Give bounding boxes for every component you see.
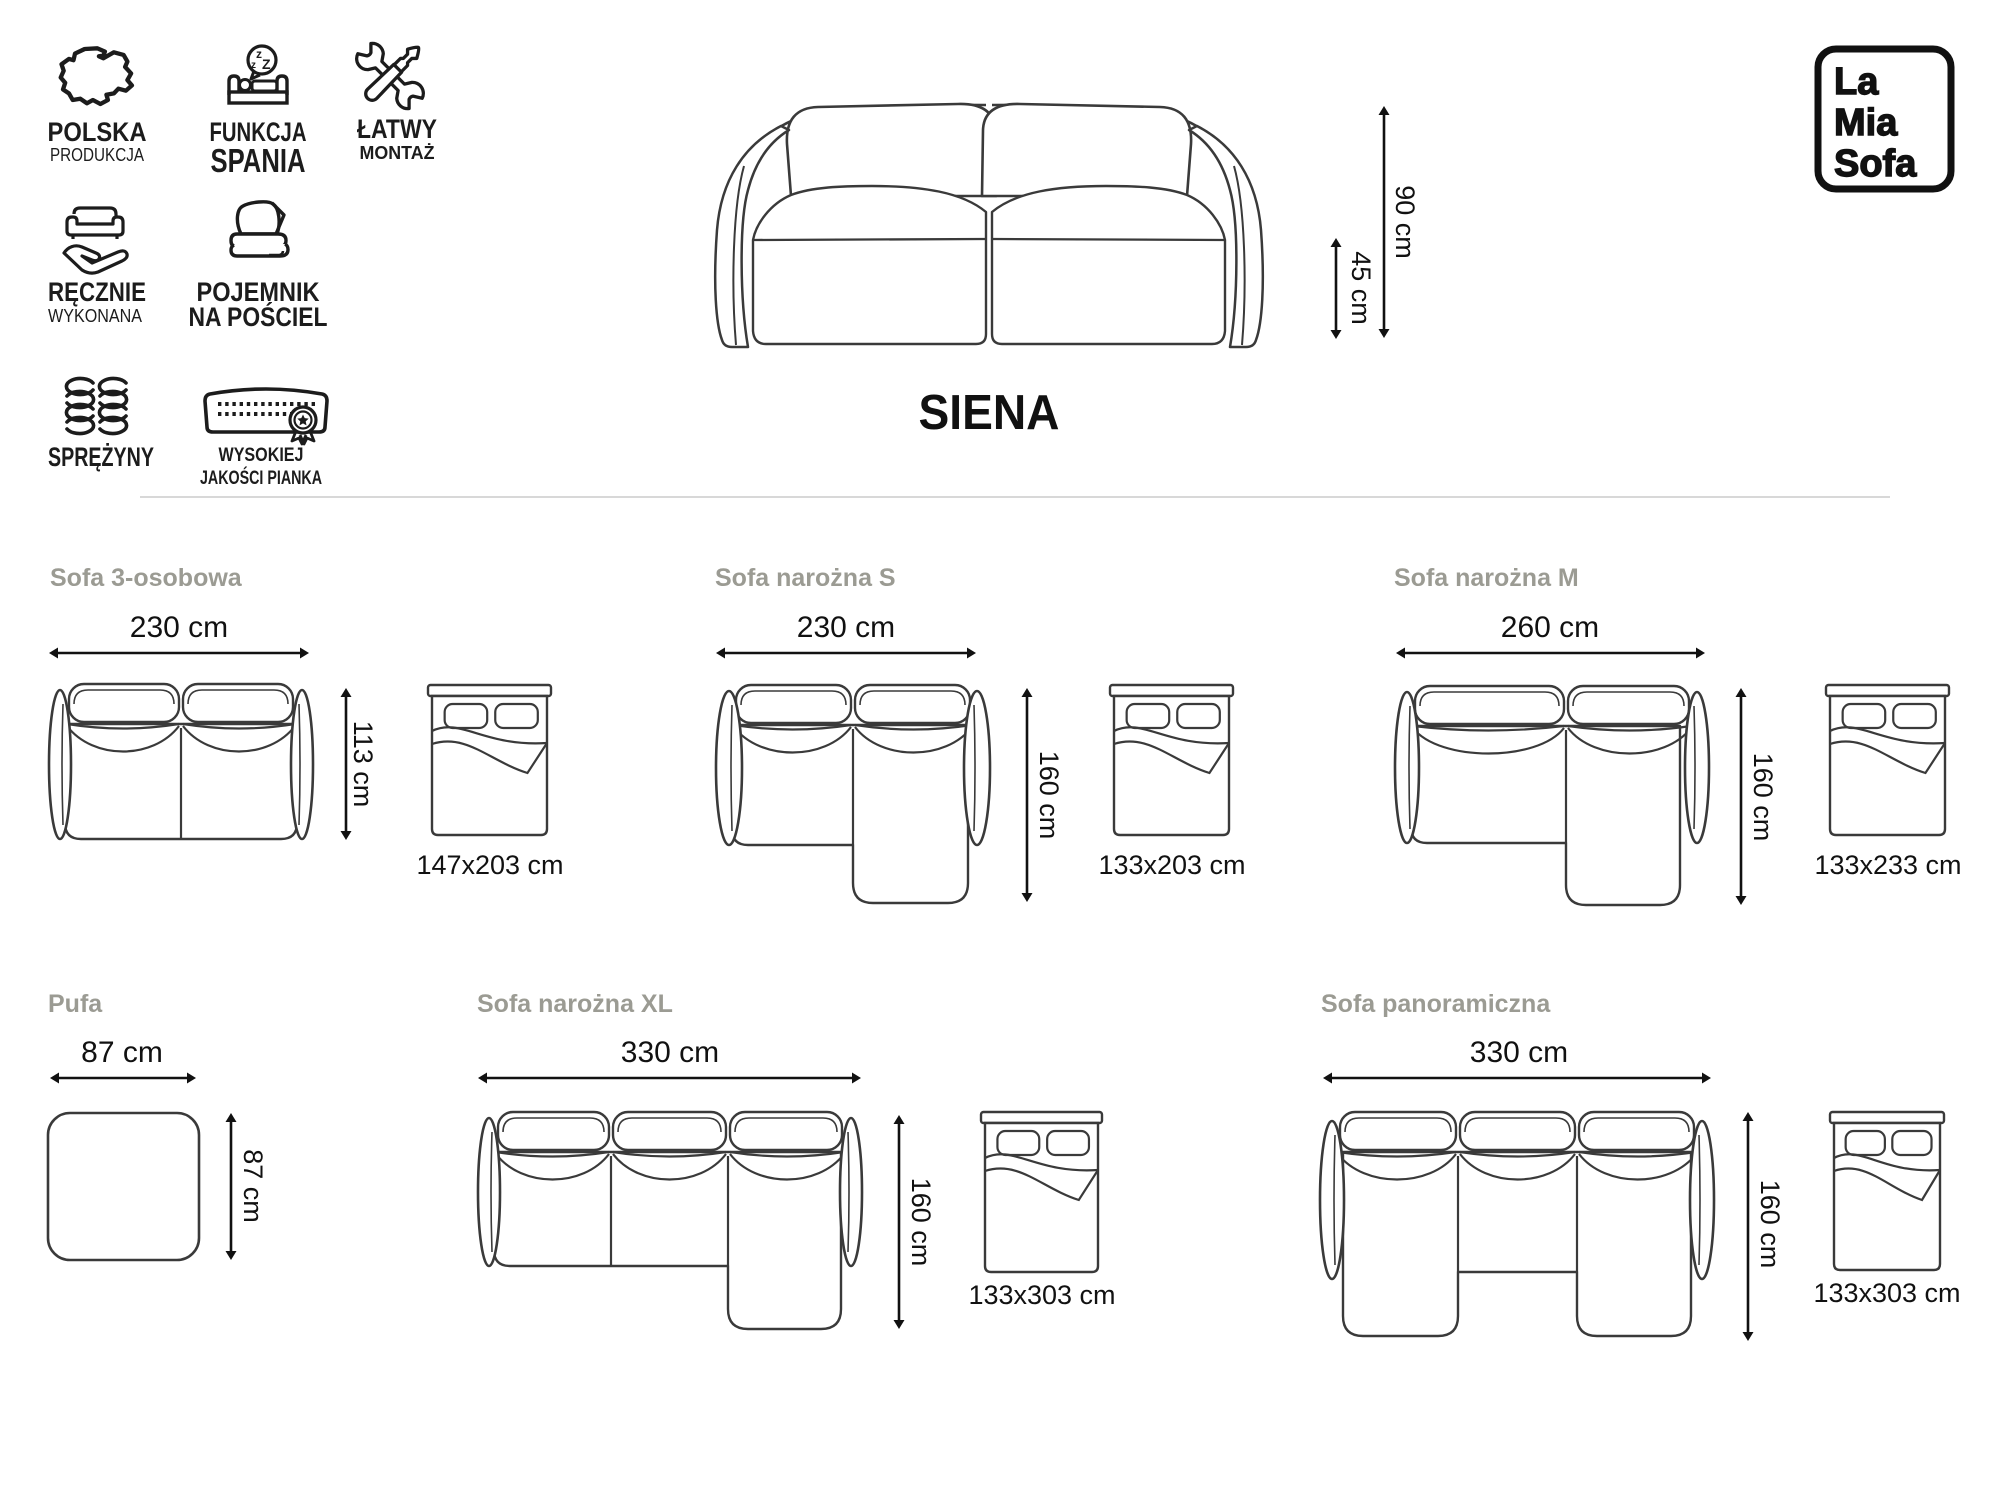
svg-text:POLSKA: POLSKA [48,117,147,147]
svg-text:SPRĘŻYNY: SPRĘŻYNY [48,442,154,472]
svg-text:Sofa narożna M: Sofa narożna M [1394,564,1579,592]
svg-text:87 cm: 87 cm [238,1149,268,1223]
svg-text:MONTAŻ: MONTAŻ [360,143,435,163]
svg-text:Sofa narożna XL: Sofa narożna XL [477,990,673,1018]
svg-text:147x203 cm: 147x203 cm [416,850,563,880]
svg-text:WYKONANA: WYKONANA [48,306,142,326]
svg-text:45 cm: 45 cm [1346,251,1376,325]
svg-text:ŁATWY: ŁATWY [357,114,437,144]
svg-text:NA POŚCIEL: NA POŚCIEL [189,301,328,332]
svg-text:Sofa narożna S: Sofa narożna S [715,564,896,592]
svg-text:133x303 cm: 133x303 cm [968,1280,1115,1310]
svg-text:230 cm: 230 cm [130,611,228,644]
svg-text:PRODUKCJA: PRODUKCJA [50,145,144,165]
svg-text:Z: Z [262,56,271,72]
svg-text:160 cm: 160 cm [1748,753,1778,842]
svg-text:133x233 cm: 133x233 cm [1814,850,1961,880]
svg-text:Mia: Mia [1834,102,1898,144]
svg-text:Pufa: Pufa [48,990,103,1018]
svg-text:260 cm: 260 cm [1501,611,1599,644]
svg-text:SPANIA: SPANIA [211,142,306,179]
svg-text:WYSOKIEJ: WYSOKIEJ [219,445,304,466]
svg-text:Sofa 3-osobowa: Sofa 3-osobowa [50,564,243,592]
svg-text:330 cm: 330 cm [1470,1036,1568,1069]
svg-text:133x303 cm: 133x303 cm [1813,1278,1960,1308]
svg-text:Sofa: Sofa [1834,143,1917,185]
svg-text:Sofa panoramiczna: Sofa panoramiczna [1321,990,1551,1018]
svg-text:160 cm: 160 cm [906,1178,936,1267]
svg-text:La: La [1834,61,1879,103]
svg-text:z: z [251,60,256,71]
svg-text:133x203 cm: 133x203 cm [1098,850,1245,880]
svg-text:90 cm: 90 cm [1390,185,1420,259]
svg-text:87 cm: 87 cm [81,1036,163,1069]
svg-text:JAKOŚCI PIANKA: JAKOŚCI PIANKA [200,467,322,489]
svg-text:160 cm: 160 cm [1034,751,1064,840]
svg-text:230 cm: 230 cm [797,611,895,644]
svg-text:RĘCZNIE: RĘCZNIE [48,277,146,307]
svg-text:330 cm: 330 cm [621,1036,719,1069]
svg-text:113 cm: 113 cm [348,721,378,808]
svg-text:SIENA: SIENA [919,386,1060,440]
svg-text:160 cm: 160 cm [1755,1180,1785,1269]
